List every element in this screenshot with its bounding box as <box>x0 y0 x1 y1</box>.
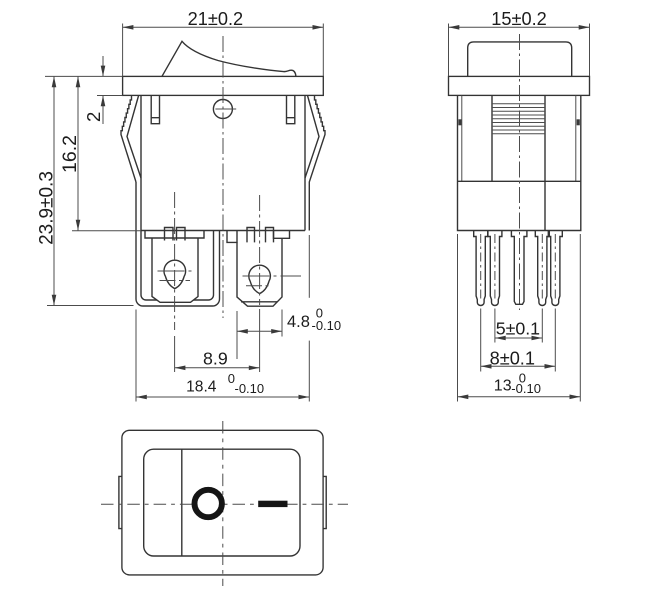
svg-text:13: 13 <box>494 378 512 395</box>
svg-text:-0.10: -0.10 <box>511 381 541 396</box>
svg-text:21±0.2: 21±0.2 <box>188 9 244 29</box>
svg-text:23.9±0.3: 23.9±0.3 <box>36 171 57 245</box>
svg-text:8.9: 8.9 <box>203 349 228 369</box>
svg-text:8±0.1: 8±0.1 <box>490 349 535 369</box>
svg-text:18.4: 18.4 <box>186 378 217 395</box>
svg-text:-0.10: -0.10 <box>312 318 342 333</box>
svg-text:5±0.1: 5±0.1 <box>496 319 540 339</box>
svg-text:-0.10: -0.10 <box>235 381 265 396</box>
svg-text:16.2: 16.2 <box>59 135 81 173</box>
svg-text:15±0.2: 15±0.2 <box>491 9 547 29</box>
svg-text:4.8: 4.8 <box>287 313 310 331</box>
svg-text:2: 2 <box>83 112 104 122</box>
